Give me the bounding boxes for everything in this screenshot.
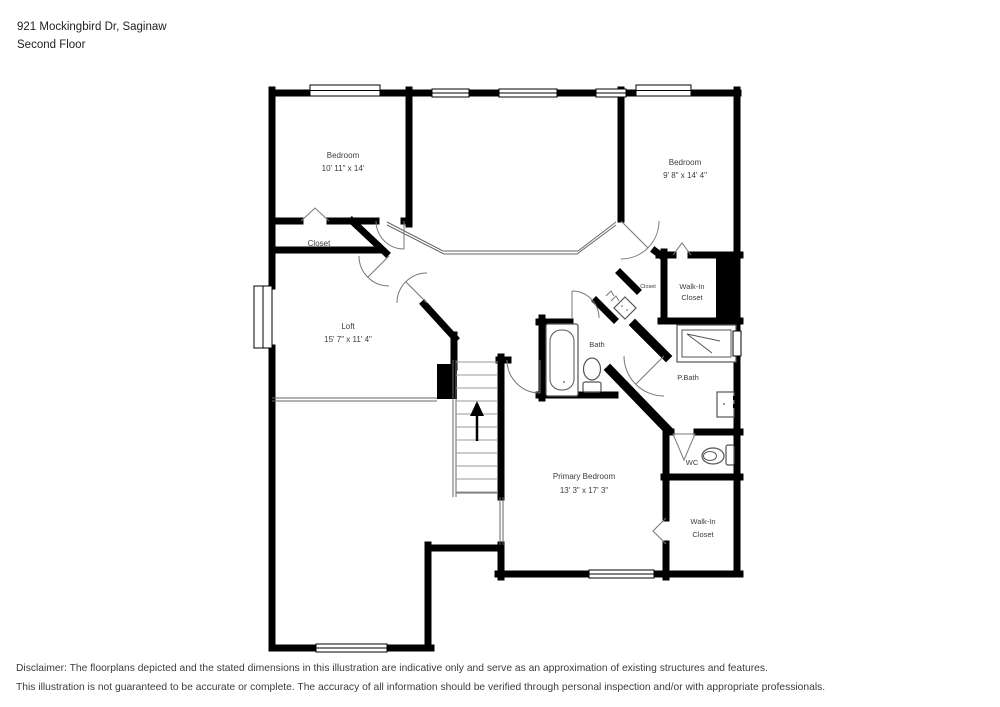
walkin-upper-label-2: Closet [681, 293, 703, 302]
walkin-lower-door [653, 518, 666, 544]
pbath-vanity-sink-icon [717, 392, 737, 417]
hall-closet-label: Closet [640, 284, 656, 290]
bedroom-left-dims: 10' 11" x 14' [322, 164, 365, 173]
closet-chase-fill [716, 258, 740, 321]
bathtub-icon [546, 324, 578, 396]
hall-closet-door-marks [606, 291, 619, 301]
shower-icon [677, 325, 741, 362]
walkin-lower-label-1: Walk-In [690, 517, 715, 526]
stair-stringer [453, 360, 498, 497]
walkin-upper-label-1: Walk-In [679, 282, 704, 291]
primary-bedroom-door-arc [507, 360, 540, 393]
primary-bath-label: P.Bath [677, 373, 699, 382]
bath-label: Bath [589, 340, 604, 349]
wc-door-fold [673, 434, 695, 460]
primary-bedroom-label: Primary Bedroom [553, 472, 616, 481]
closet-bifold-door [301, 208, 329, 221]
disclaimer-line-1: Disclaimer: The floorplans depicted and … [16, 660, 825, 679]
floor-plan-page: 921 Mockingbird Dr, Saginaw Second Floor [0, 0, 1000, 707]
closet-label: Closet [308, 239, 331, 248]
diagonal-walls [352, 221, 663, 338]
bedroom-right-dims: 9' 8" x 14' 4" [663, 171, 707, 180]
bath-toilet-icon [583, 358, 601, 392]
loft-double-door-left [359, 256, 389, 286]
disclaimer-line-2: This illustration is not guaranteed to b… [16, 679, 825, 698]
wc-label: WC [686, 458, 699, 467]
pbath-diagonal-walls [610, 325, 668, 430]
loft-label: Loft [341, 322, 355, 331]
loft-double-door-right [397, 273, 427, 303]
bath-door-arc [572, 291, 599, 318]
walkin-lower-label-2: Closet [692, 530, 714, 539]
loft-dims: 15' 7" x 11' 4" [324, 335, 372, 344]
floor-plan-svg: Bedroom 10' 11" x 14' Bedroom 9' 8" x 14… [0, 0, 1000, 707]
bedroom-right-label: Bedroom [669, 158, 702, 167]
stairs-up-arrow-icon [470, 401, 484, 441]
primary-west-window-line [500, 497, 503, 545]
disclaimer: Disclaimer: The floorplans depicted and … [16, 660, 825, 697]
loft-floor-break-line [272, 398, 437, 401]
bedroom-left-label: Bedroom [327, 151, 360, 160]
hall-closet-shelf-icon [614, 297, 636, 319]
stair-wall-block [437, 364, 457, 399]
primary-bedroom-dims: 13' 3" x 17' 3" [560, 486, 608, 495]
wc-toilet-icon [702, 445, 734, 465]
foyer-railing [387, 222, 616, 254]
